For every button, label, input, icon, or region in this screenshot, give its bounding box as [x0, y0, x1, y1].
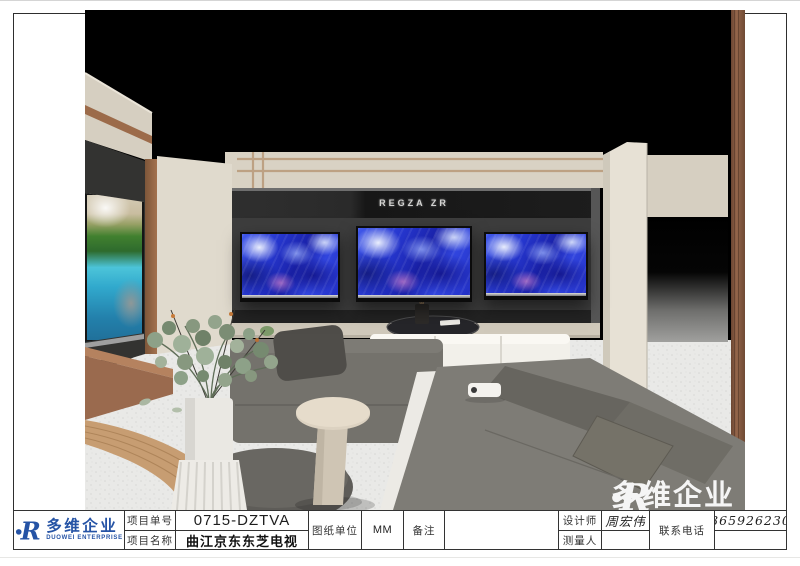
interior-render-image: REGZA ZR R 多维企业 — [85, 10, 745, 510]
company-name-cn: 多维企业 — [46, 518, 123, 536]
wood-corner-pillar — [731, 10, 745, 468]
surveyor-label: 测量人 — [558, 530, 601, 549]
drawing-unit-value: MM — [361, 511, 403, 549]
project-no-value: 0715-DZTVA — [175, 511, 308, 530]
title-block: R 多维企业 DUOWEI ENTERPRISE 项目单号 项目名称 0715-… — [13, 510, 787, 550]
tv-center-soundbar — [358, 295, 470, 298]
tv-right — [484, 232, 588, 300]
surveyor-value — [601, 530, 649, 549]
drawing-unit-label: 图纸单位 — [308, 511, 361, 549]
tv-left — [240, 232, 340, 302]
cream-wall-band — [225, 152, 603, 188]
svg-text:R: R — [20, 516, 41, 545]
designer-label: 设计师 — [558, 511, 601, 530]
watermark-logo-icon: R — [611, 474, 653, 510]
floor-projector — [465, 383, 505, 403]
remark-label: 备注 — [403, 511, 444, 549]
drawing-sheet: REGZA ZR R 多维企业 R 多维企业 DUOWEI ENTERPRISE… — [0, 0, 800, 566]
tv-left-screen — [242, 234, 338, 295]
designer-value: 周宏伟 — [601, 511, 649, 530]
doorway-opening — [647, 155, 728, 342]
company-logo-text: 多维企业 DUOWEI ENTERPRISE — [46, 518, 123, 543]
project-name-label: 项目名称 — [124, 530, 175, 549]
tv-center — [356, 226, 472, 302]
company-logo-icon: R — [15, 515, 43, 545]
phone-empty-cell — [714, 530, 786, 549]
phone-label: 联系电话 — [649, 511, 714, 549]
page-edge-line-bottom — [0, 557, 800, 558]
page-edge-line — [0, 0, 800, 1]
company-name-en: DUOWEI ENTERPRISE — [46, 535, 123, 542]
tv-right-soundbar — [486, 293, 586, 296]
project-name-value: 曲江京东东芝电视 — [175, 530, 308, 549]
tv-left-soundbar — [242, 295, 338, 298]
tv-center-screen — [358, 228, 470, 295]
phone-value: 13659262305 — [714, 511, 786, 530]
company-logo: R 多维企业 DUOWEI ENTERPRISE — [14, 511, 124, 549]
project-no-label: 项目单号 — [124, 511, 175, 530]
tv-right-screen — [486, 234, 586, 293]
company-watermark: R 多维企业 — [611, 474, 735, 510]
svg-text:R: R — [618, 475, 650, 510]
regza-brand-sign: REGZA ZR — [228, 198, 600, 208]
left-landscape-tv — [85, 193, 144, 342]
remark-value — [444, 511, 558, 549]
